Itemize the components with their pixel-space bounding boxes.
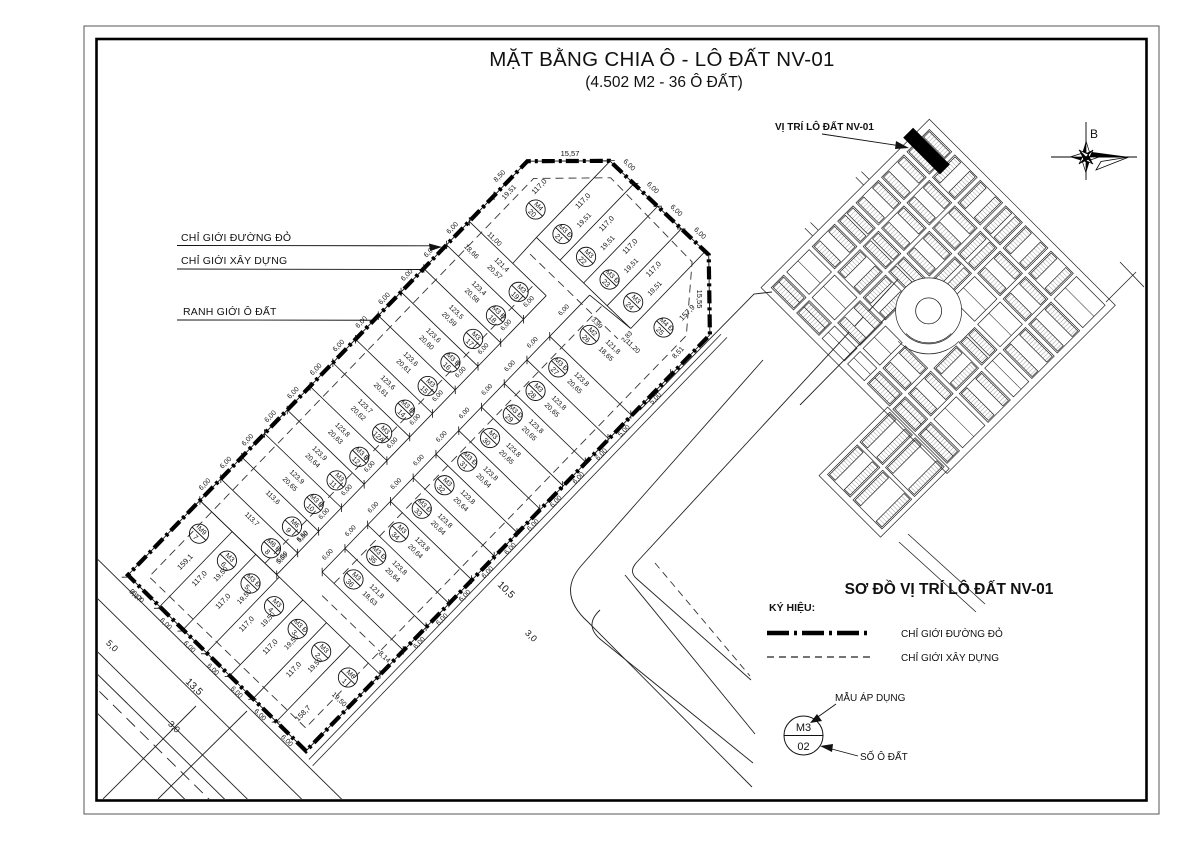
svg-text:CHỈ GIỚI ĐƯỜNG ĐỎ: CHỈ GIỚI ĐƯỜNG ĐỎ — [181, 231, 291, 244]
svg-text:02: 02 — [797, 741, 809, 753]
svg-text:M3: M3 — [796, 722, 811, 734]
svg-text:SƠ ĐỒ VỊ TRÍ LÔ ĐẤT NV-01: SƠ ĐỒ VỊ TRÍ LÔ ĐẤT NV-01 — [845, 580, 1054, 598]
svg-text:(4.502 M2 - 36 Ô ĐẤT): (4.502 M2 - 36 Ô ĐẤT) — [585, 74, 743, 91]
svg-text:15,55: 15,55 — [695, 290, 704, 309]
svg-text:B: B — [1090, 127, 1098, 141]
svg-text:KÝ HIỆU:: KÝ HIỆU: — [769, 601, 815, 614]
svg-text:15,57: 15,57 — [561, 149, 580, 158]
svg-text:CHỈ GIỚI XÂY DỰNG: CHỈ GIỚI XÂY DỰNG — [901, 651, 999, 664]
svg-text:CHỈ GIỚI XÂY DỰNG: CHỈ GIỚI XÂY DỰNG — [181, 254, 287, 267]
svg-text:RANH GIỚI Ô ĐẤT: RANH GIỚI Ô ĐẤT — [183, 305, 277, 318]
svg-text:MẪU ÁP DỤNG: MẪU ÁP DỤNG — [835, 691, 906, 704]
svg-text:CHỈ GIỚI ĐƯỜNG ĐỎ: CHỈ GIỚI ĐƯỜNG ĐỎ — [901, 627, 1003, 640]
svg-text:MẶT BẰNG CHIA Ô - LÔ ĐẤT NV-01: MẶT BẰNG CHIA Ô - LÔ ĐẤT NV-01 — [489, 47, 834, 71]
svg-text:SỐ Ô ĐẤT: SỐ Ô ĐẤT — [860, 749, 908, 763]
svg-text:VỊ TRÍ LÔ ĐẤT NV-01: VỊ TRÍ LÔ ĐẤT NV-01 — [775, 120, 874, 133]
